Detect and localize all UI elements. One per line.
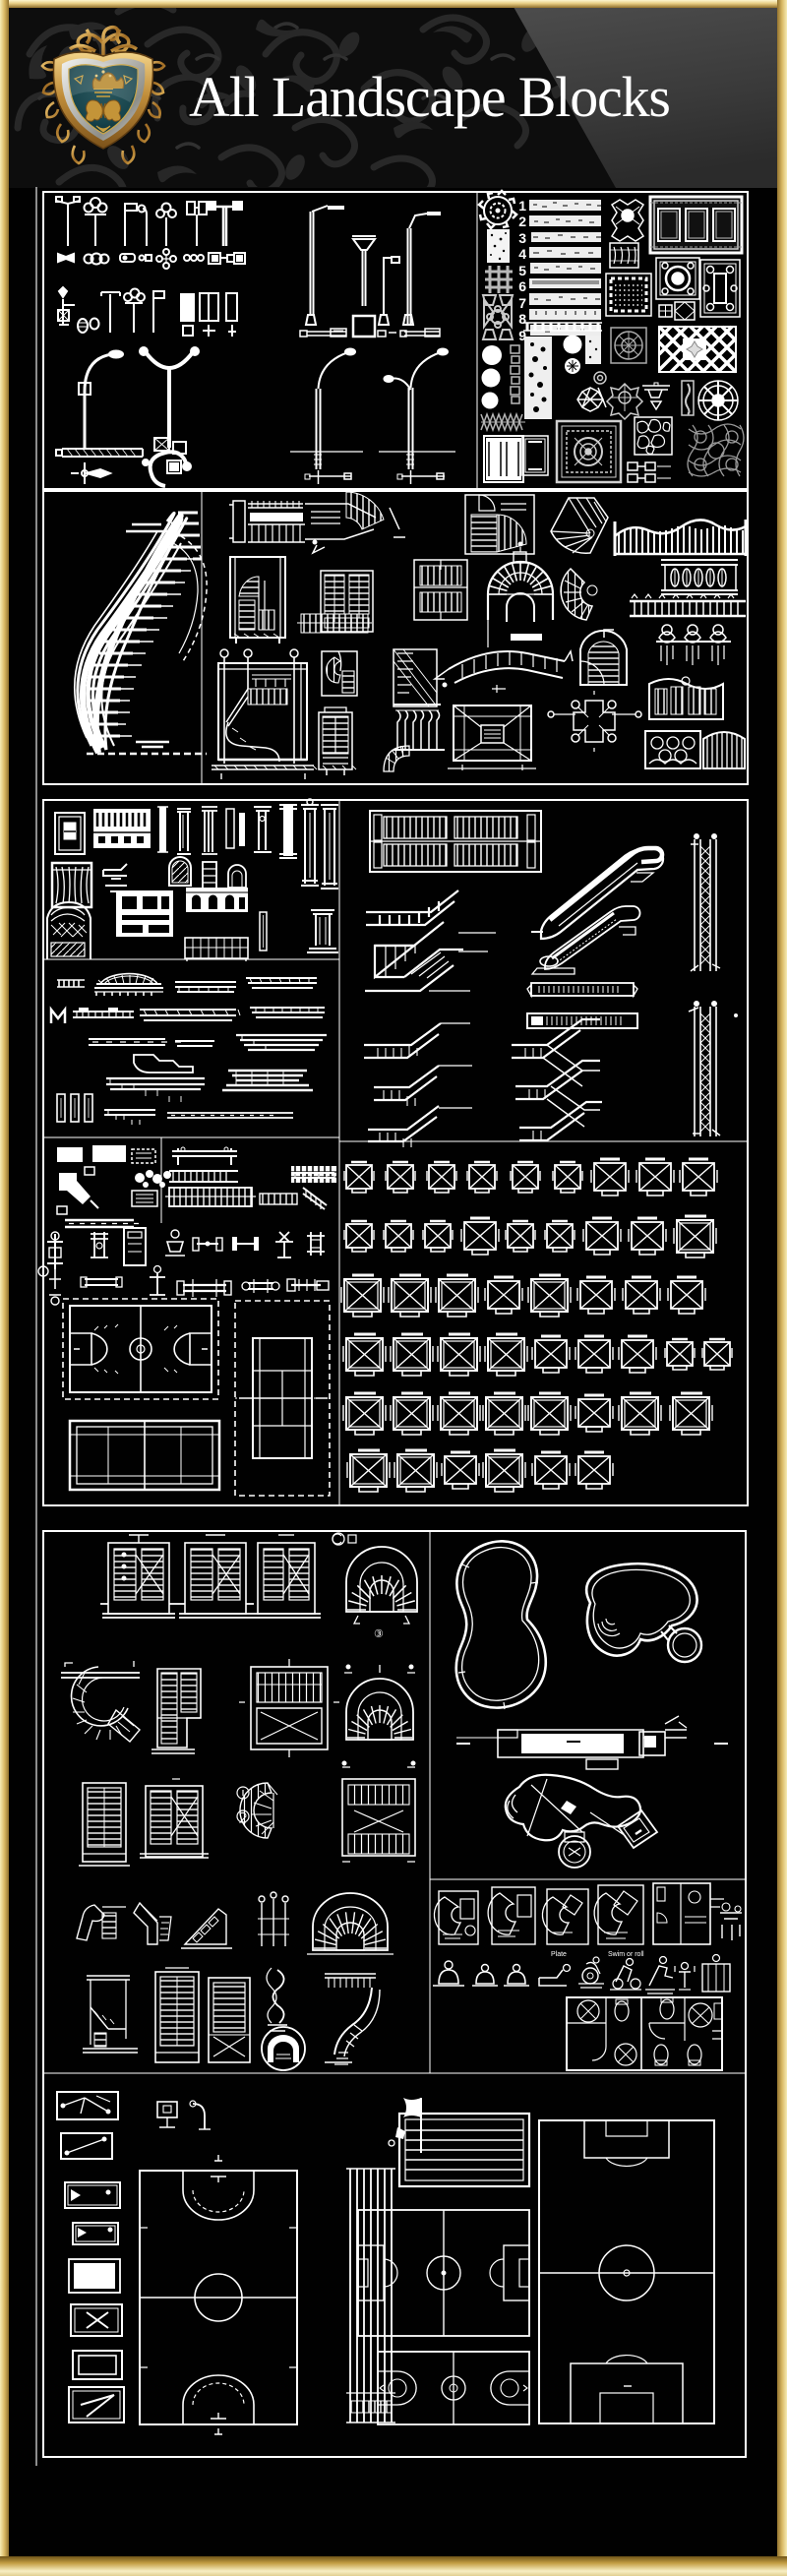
svg-text:Swim or roll: Swim or roll <box>608 1951 644 1958</box>
svg-text:6: 6 <box>518 278 526 294</box>
svg-text:1: 1 <box>518 198 526 214</box>
svg-text:Plate: Plate <box>551 1951 567 1958</box>
svg-text:5: 5 <box>518 263 526 278</box>
svg-text:7: 7 <box>518 295 526 311</box>
svg-text:2: 2 <box>518 214 526 229</box>
svg-text:③: ③ <box>374 1628 384 1640</box>
svg-text:All Landscape Blocks: All Landscape Blocks <box>189 65 671 129</box>
svg-text:8: 8 <box>518 311 526 327</box>
svg-text:3: 3 <box>518 230 526 246</box>
svg-text:4: 4 <box>518 246 526 262</box>
